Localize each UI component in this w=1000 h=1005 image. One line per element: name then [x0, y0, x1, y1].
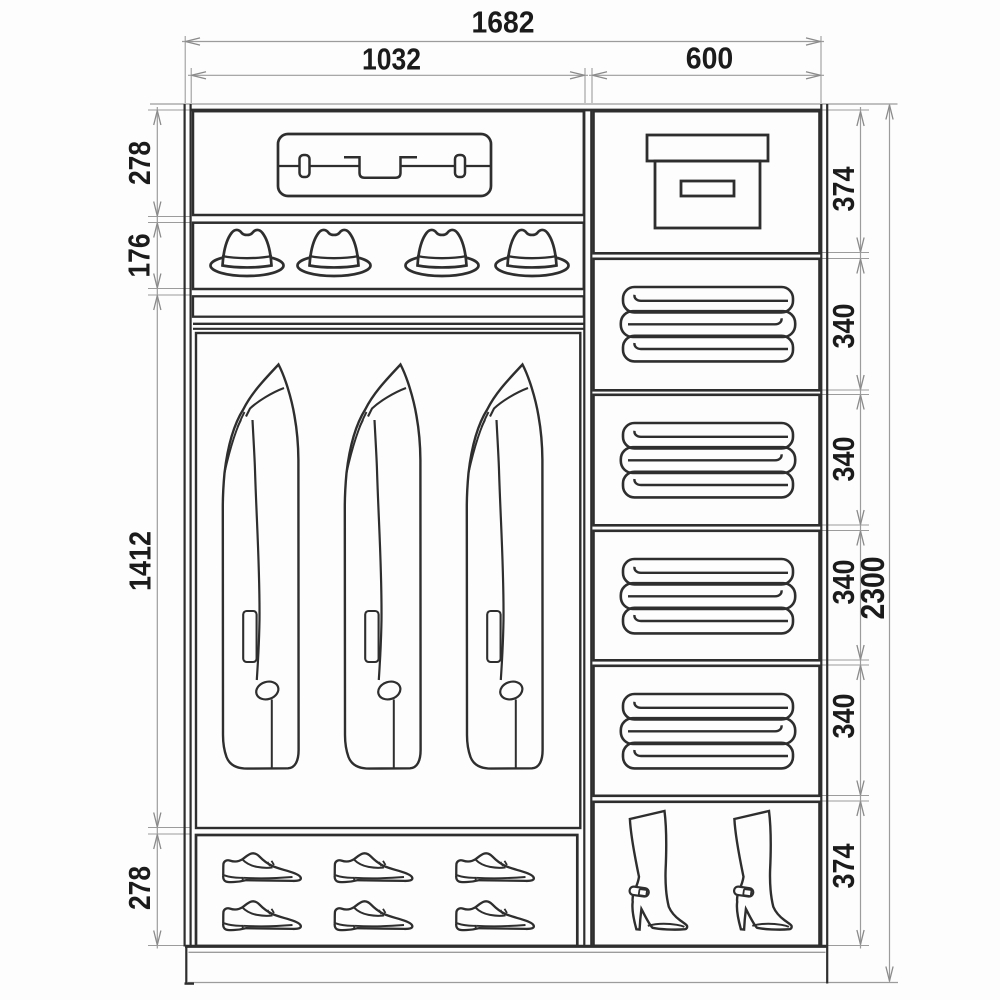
svg-text:1682: 1682 [472, 5, 535, 40]
svg-text:1412: 1412 [123, 531, 158, 591]
svg-text:2300: 2300 [854, 557, 891, 620]
svg-text:340: 340 [826, 694, 861, 739]
svg-text:1032: 1032 [362, 42, 421, 77]
svg-text:340: 340 [826, 437, 861, 482]
svg-text:176: 176 [122, 234, 157, 278]
svg-text:278: 278 [122, 866, 157, 910]
svg-text:340: 340 [826, 304, 861, 349]
svg-text:278: 278 [122, 141, 157, 185]
svg-text:374: 374 [826, 166, 861, 212]
svg-text:374: 374 [826, 843, 861, 889]
svg-text:600: 600 [686, 40, 734, 75]
